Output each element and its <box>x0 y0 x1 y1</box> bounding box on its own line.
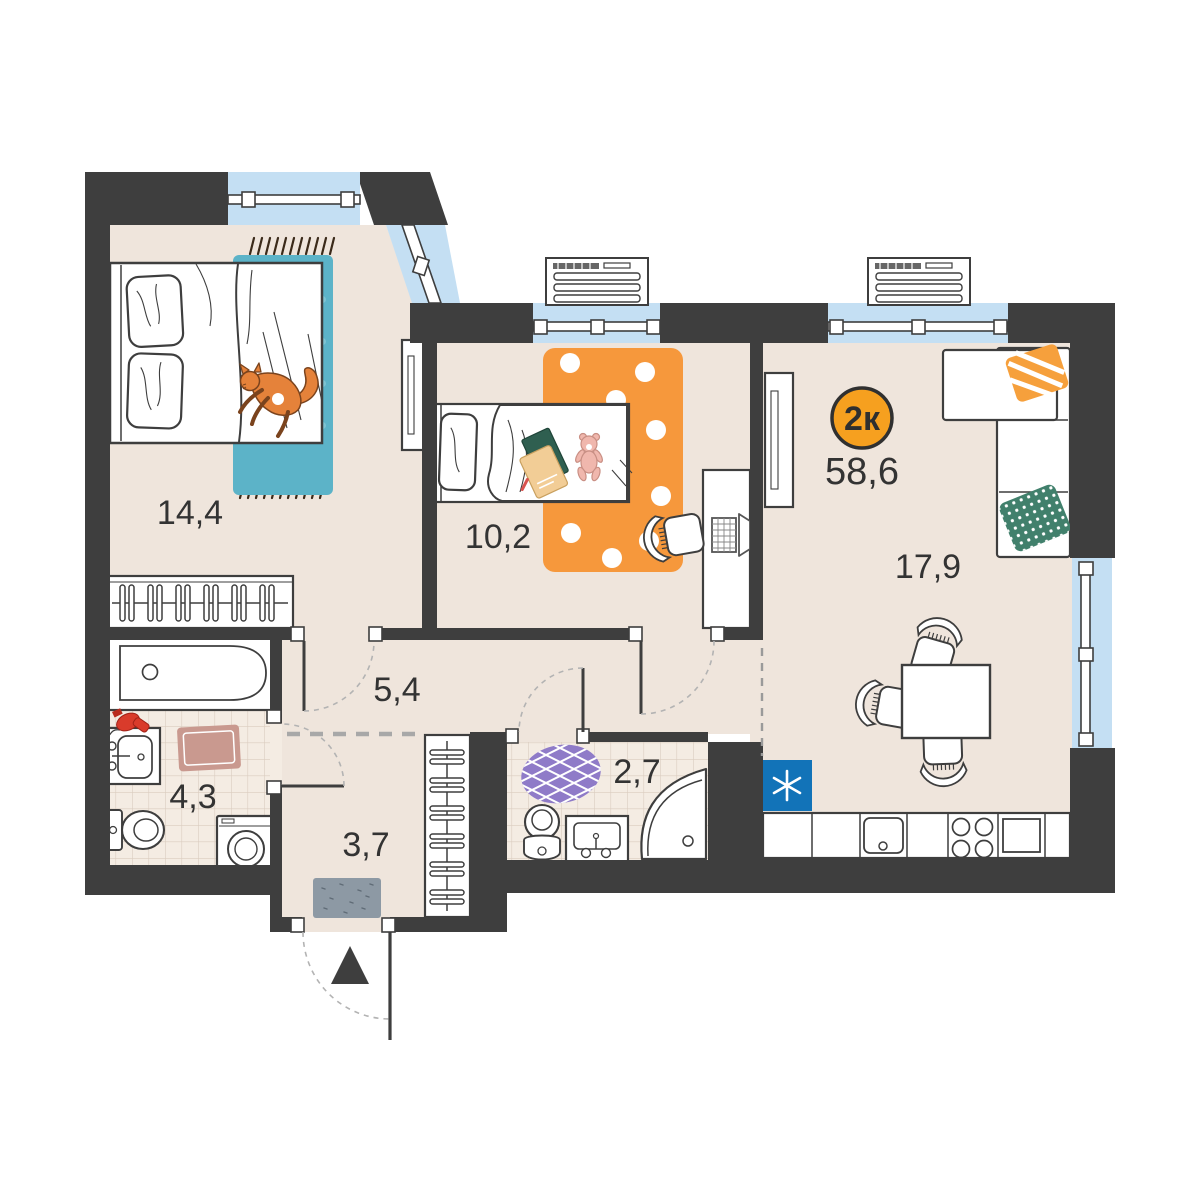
desk <box>703 470 750 628</box>
room-area-label-living-kitchen: 17,9 <box>895 548 961 586</box>
door-gap-floor <box>270 723 282 785</box>
washing-machine <box>217 816 275 872</box>
hall-wardrobe-rack <box>425 735 470 917</box>
total-area-label: 58,6 <box>825 451 899 493</box>
ac-unit <box>546 258 648 305</box>
ac-unit <box>868 258 970 305</box>
floor-plan-svg: 14,4 10,2 17,9 5,4 4,3 2,7 3,7 2к 58,6 <box>0 0 1200 1200</box>
bathroom-sink <box>108 728 160 784</box>
floor-plan: 14,4 10,2 17,9 5,4 4,3 2,7 3,7 2к 58,6 <box>0 0 1200 1200</box>
wall-mirror <box>402 340 424 450</box>
kids-bedroom-window <box>533 303 660 343</box>
kitchen-counter <box>763 813 1070 858</box>
bathtub <box>108 636 278 710</box>
living-window <box>828 303 1008 343</box>
wc-sink <box>566 816 628 862</box>
bedroom-window <box>228 172 360 225</box>
room-area-label-bathroom: 4,3 <box>169 778 216 816</box>
apartment-type-label: 2к <box>844 400 881 438</box>
kitchen-sink <box>864 818 903 853</box>
oven <box>1003 819 1040 852</box>
toilet <box>106 810 164 850</box>
pink-bath-mat <box>177 724 241 771</box>
dining-table <box>902 665 990 738</box>
fridge <box>763 760 812 811</box>
room-area-label-bedroom: 14,4 <box>157 494 223 532</box>
living-side-window <box>1072 558 1112 748</box>
entrance-gap-floor <box>302 917 390 932</box>
room-area-label-kids-bedroom: 10,2 <box>465 518 531 556</box>
entrance-arrow-icon <box>331 946 369 984</box>
room-area-label-wc: 2,7 <box>613 753 660 791</box>
laptop-icon <box>712 514 750 556</box>
tv-console <box>765 373 793 507</box>
doormat <box>313 878 381 918</box>
room-area-label-hallway: 3,7 <box>342 826 389 864</box>
wardrobe-hangers <box>107 576 293 628</box>
door-gap-floor <box>637 628 718 640</box>
wc-toilet <box>524 805 560 860</box>
double-bed <box>110 263 322 443</box>
room-area-label-corridor: 5,4 <box>373 671 420 709</box>
entrance <box>303 932 390 1040</box>
